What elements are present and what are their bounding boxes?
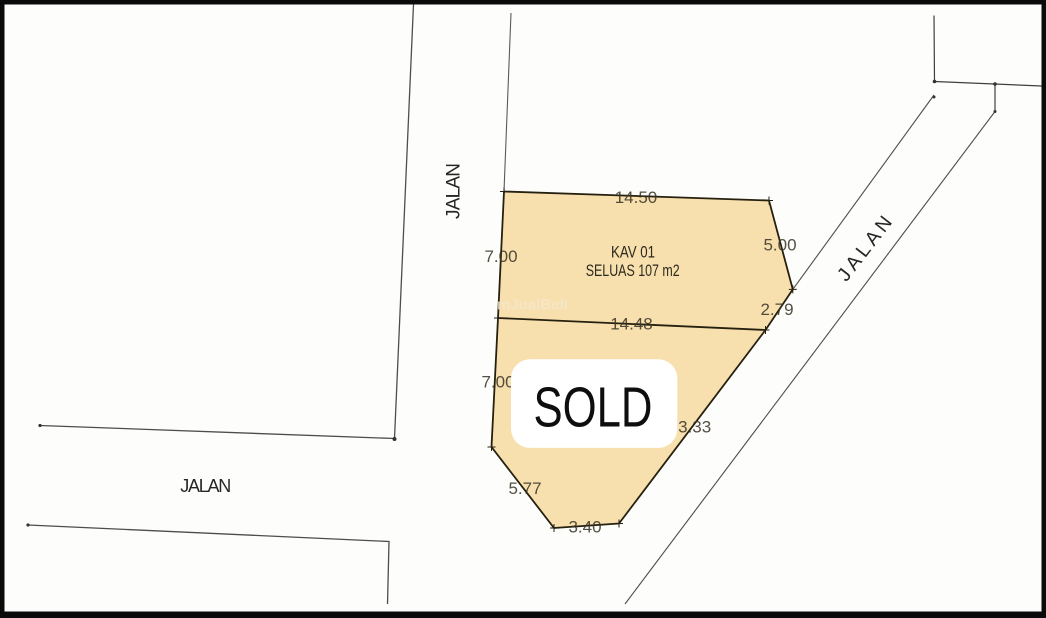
svg-text:SOLD: SOLD — [534, 375, 653, 439]
svg-text:5.00: 5.00 — [763, 236, 796, 255]
svg-text:5.77: 5.77 — [508, 479, 541, 498]
svg-text:JALAN: JALAN — [444, 163, 465, 219]
svg-text:7.00: 7.00 — [481, 373, 514, 392]
svg-text:JALAN: JALAN — [180, 476, 231, 496]
svg-text:mJualBeli: mJualBeli — [497, 297, 568, 314]
svg-text:14.50: 14.50 — [615, 188, 658, 207]
svg-text:.3.33: .3.33 — [673, 418, 711, 437]
svg-text:SELUAS 107 m2: SELUAS 107 m2 — [586, 262, 680, 280]
svg-text:3.40: 3.40 — [568, 518, 601, 537]
svg-text:KAV 01: KAV 01 — [611, 244, 655, 262]
svg-text:2.79: 2.79 — [760, 300, 793, 319]
svg-text:14.48: 14.48 — [610, 315, 653, 334]
svg-text:7.00: 7.00 — [484, 247, 517, 266]
